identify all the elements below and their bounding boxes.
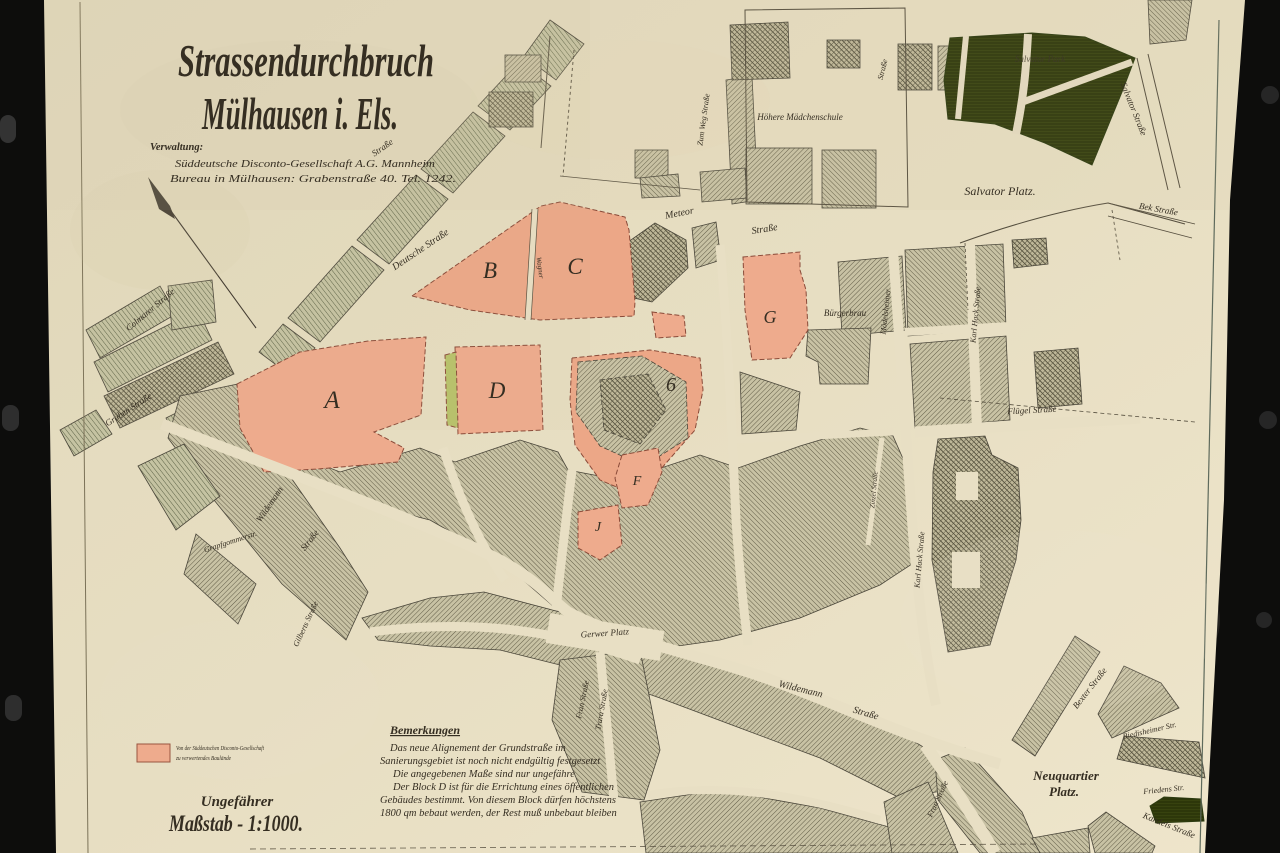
svg-text:A: A	[322, 387, 340, 414]
svg-text:B: B	[483, 258, 497, 283]
svg-text:Die angegebenen Maße sind nur: Die angegebenen Maße sind nur ungefähre	[392, 769, 575, 780]
svg-text:Platz.: Platz.	[1049, 784, 1079, 799]
svg-text:1800 qm bebaut werden, der Res: 1800 qm bebaut werden, der Rest muß unbe…	[380, 808, 617, 819]
svg-text:Neuquartier: Neuquartier	[1032, 768, 1100, 783]
svg-text:Höhere Mädchenschule: Höhere Mädchenschule	[756, 112, 842, 122]
svg-text:Der Block D ist für die Errich: Der Block D ist für die Errichtung eines…	[392, 782, 614, 793]
svg-text:Gebäudes bestimmt. Von diesem: Gebäudes bestimmt. Von diesem Block dürf…	[380, 795, 616, 806]
svg-text:F: F	[632, 474, 642, 489]
svg-text:Von der Süddeutschen Disconto-: Von der Süddeutschen Disconto-Gesellscha…	[176, 745, 264, 752]
svg-text:C: C	[567, 254, 583, 279]
svg-text:Ungefährer: Ungefährer	[201, 794, 274, 810]
svg-text:Sanierungsgebiet ist noch nich: Sanierungsgebiet ist noch nicht endgülti…	[380, 756, 601, 767]
svg-text:Bemerkungen: Bemerkungen	[389, 723, 460, 737]
svg-text:Das neue Alignement der Grunds: Das neue Alignement der Grundstraße im	[389, 743, 566, 754]
svg-text:Salvator Platz.: Salvator Platz.	[964, 184, 1035, 198]
svg-text:Verwaltung:: Verwaltung:	[150, 142, 203, 153]
svg-text:Strassendurchbruch: Strassendurchbruch	[178, 35, 434, 86]
svg-text:zu verwertendes Baulände: zu verwertendes Baulände	[175, 755, 231, 762]
svg-text:Süddeutsche Disconto-Gesellsch: Süddeutsche Disconto-Gesellschaft A.G. M…	[175, 158, 435, 170]
svg-text:Mülhausen i. Els.: Mülhausen i. Els.	[201, 88, 398, 139]
svg-text:Bureau in Mülhausen: Grabenst: Bureau in Mülhausen: Grabenstraße 40. Te…	[170, 173, 456, 185]
svg-text:D: D	[488, 378, 506, 403]
svg-text:J: J	[595, 520, 602, 535]
svg-text:G: G	[764, 307, 777, 327]
svg-text:Bürgerbrau: Bürgerbrau	[824, 308, 867, 318]
svg-text:Maßstab - 1:1000.: Maßstab - 1:1000.	[168, 811, 303, 836]
svg-text:6: 6	[666, 374, 676, 396]
